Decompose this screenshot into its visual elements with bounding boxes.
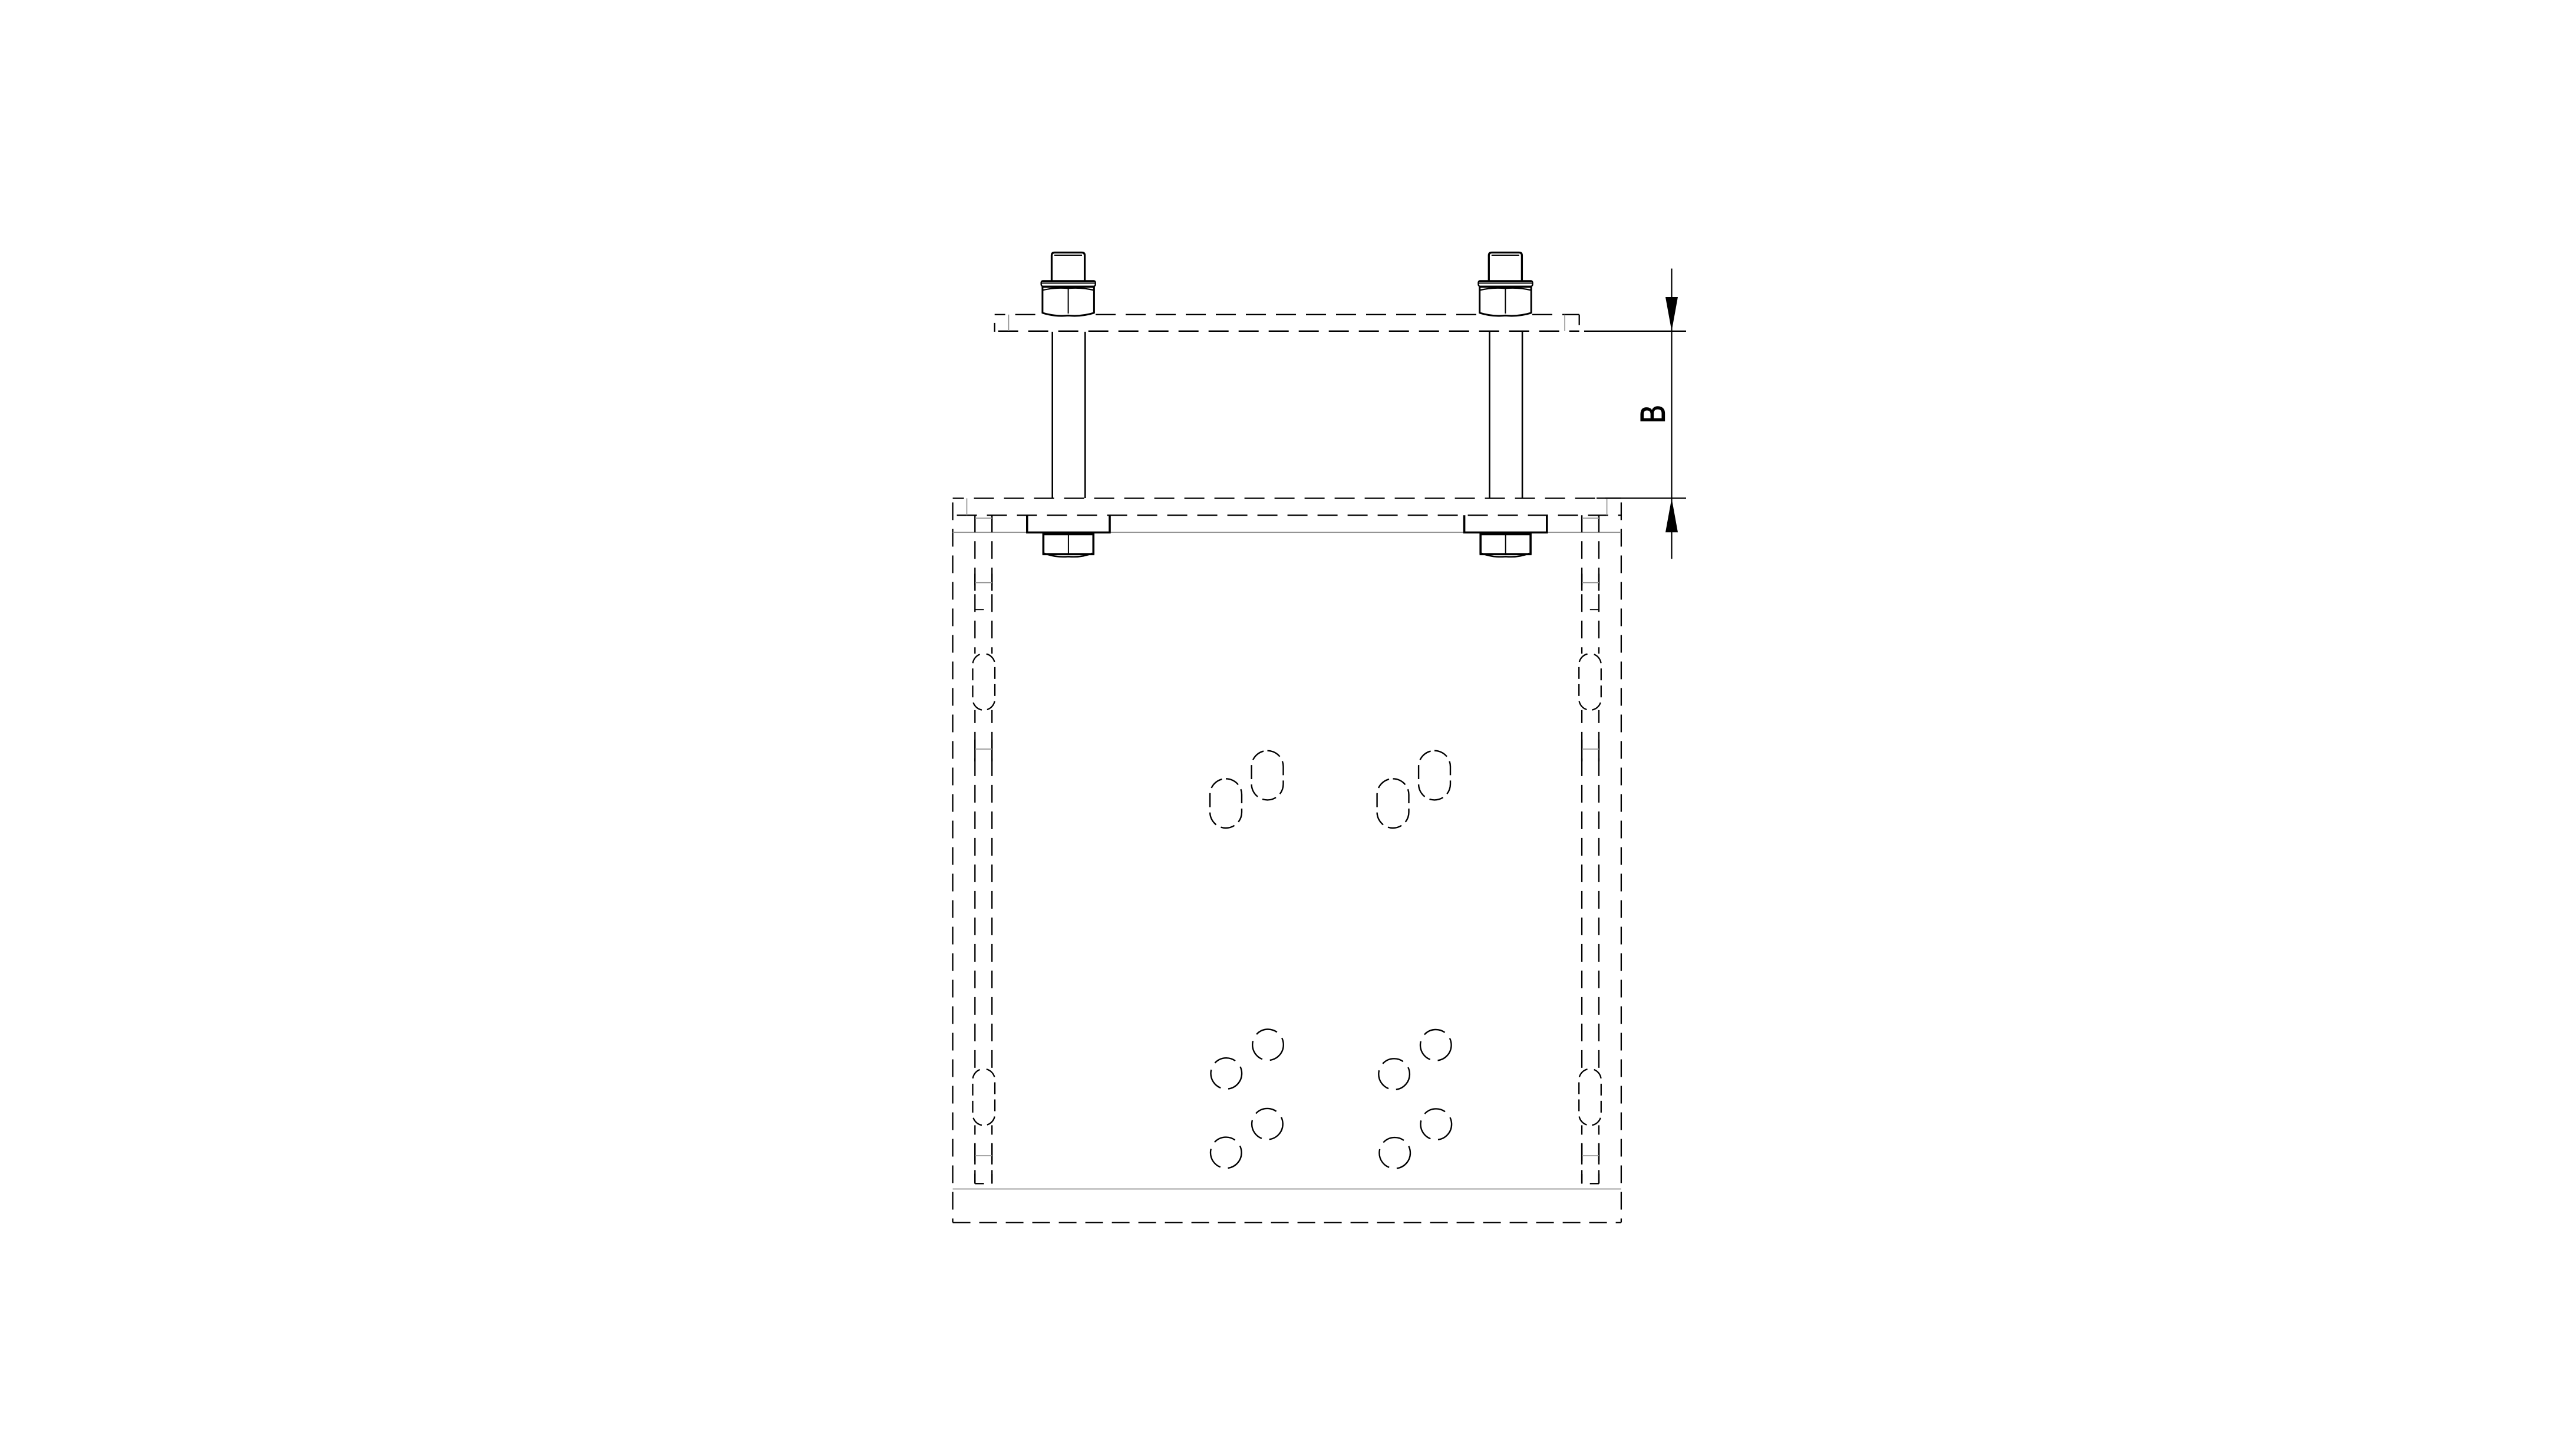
svg-text:B: B bbox=[1634, 405, 1673, 423]
